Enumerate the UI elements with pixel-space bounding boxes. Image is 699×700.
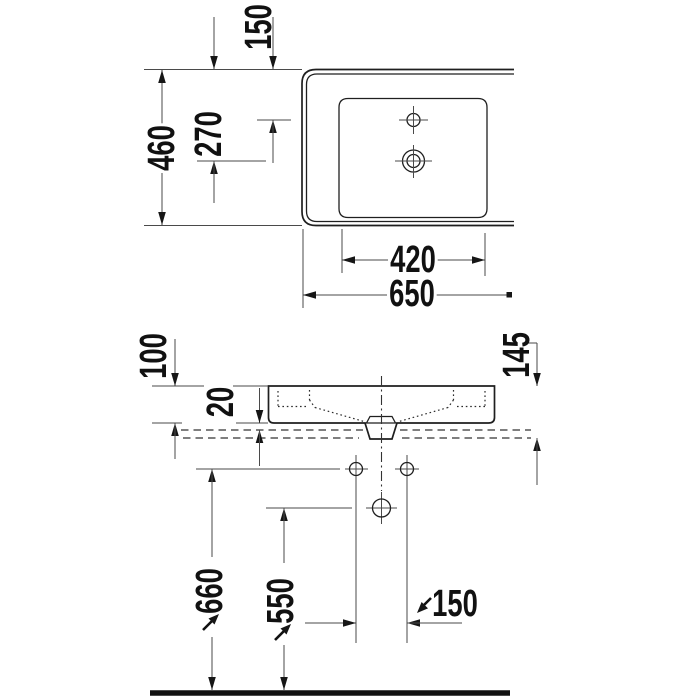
- dim-label-bottom-offset: 20: [202, 387, 240, 417]
- dim-label-depth: 460: [143, 123, 181, 173]
- pointer-arrow-150: [417, 598, 431, 613]
- dim-label-faucet-hole-from-back: 150: [240, 4, 278, 50]
- drawing-canvas: [0, 0, 699, 700]
- basin-outer-outline: [302, 70, 514, 226]
- mounting-reference-dashed-lines: [181, 430, 531, 438]
- dim-label-total-height: 145: [498, 332, 536, 378]
- top-view-dimension-lines: [144, 17, 512, 308]
- pointer-arrow-660: [203, 614, 219, 630]
- dim-label-width: 650: [387, 275, 437, 313]
- basin-profile: [269, 386, 495, 439]
- front-view-basin: [269, 376, 495, 491]
- technical-drawing-page: 150 270 460 420 650 100 20 145 660 550 1…: [0, 0, 699, 700]
- wall-holes: [196, 455, 419, 643]
- drain-hole-top-view: [395, 145, 432, 178]
- faucet-hole: [399, 106, 428, 134]
- dim-label-drain-height: 550: [262, 578, 300, 624]
- overflow-channel-left: [278, 390, 364, 422]
- dim-label-front-height: 100: [135, 333, 173, 379]
- overflow-channel-right: [399, 390, 485, 422]
- dimension-270: [210, 17, 218, 203]
- dim-label-fixing-holes-height: 660: [191, 568, 229, 614]
- basin-inner-rim-line: [307, 74, 515, 222]
- dim-label-fixing-holes-spacing: 150: [432, 585, 478, 623]
- pointer-arrow-550: [275, 624, 291, 640]
- top-view-basin: [302, 70, 514, 226]
- dim-label-drain-from-back: 270: [190, 111, 228, 157]
- dimension-20: [256, 388, 264, 466]
